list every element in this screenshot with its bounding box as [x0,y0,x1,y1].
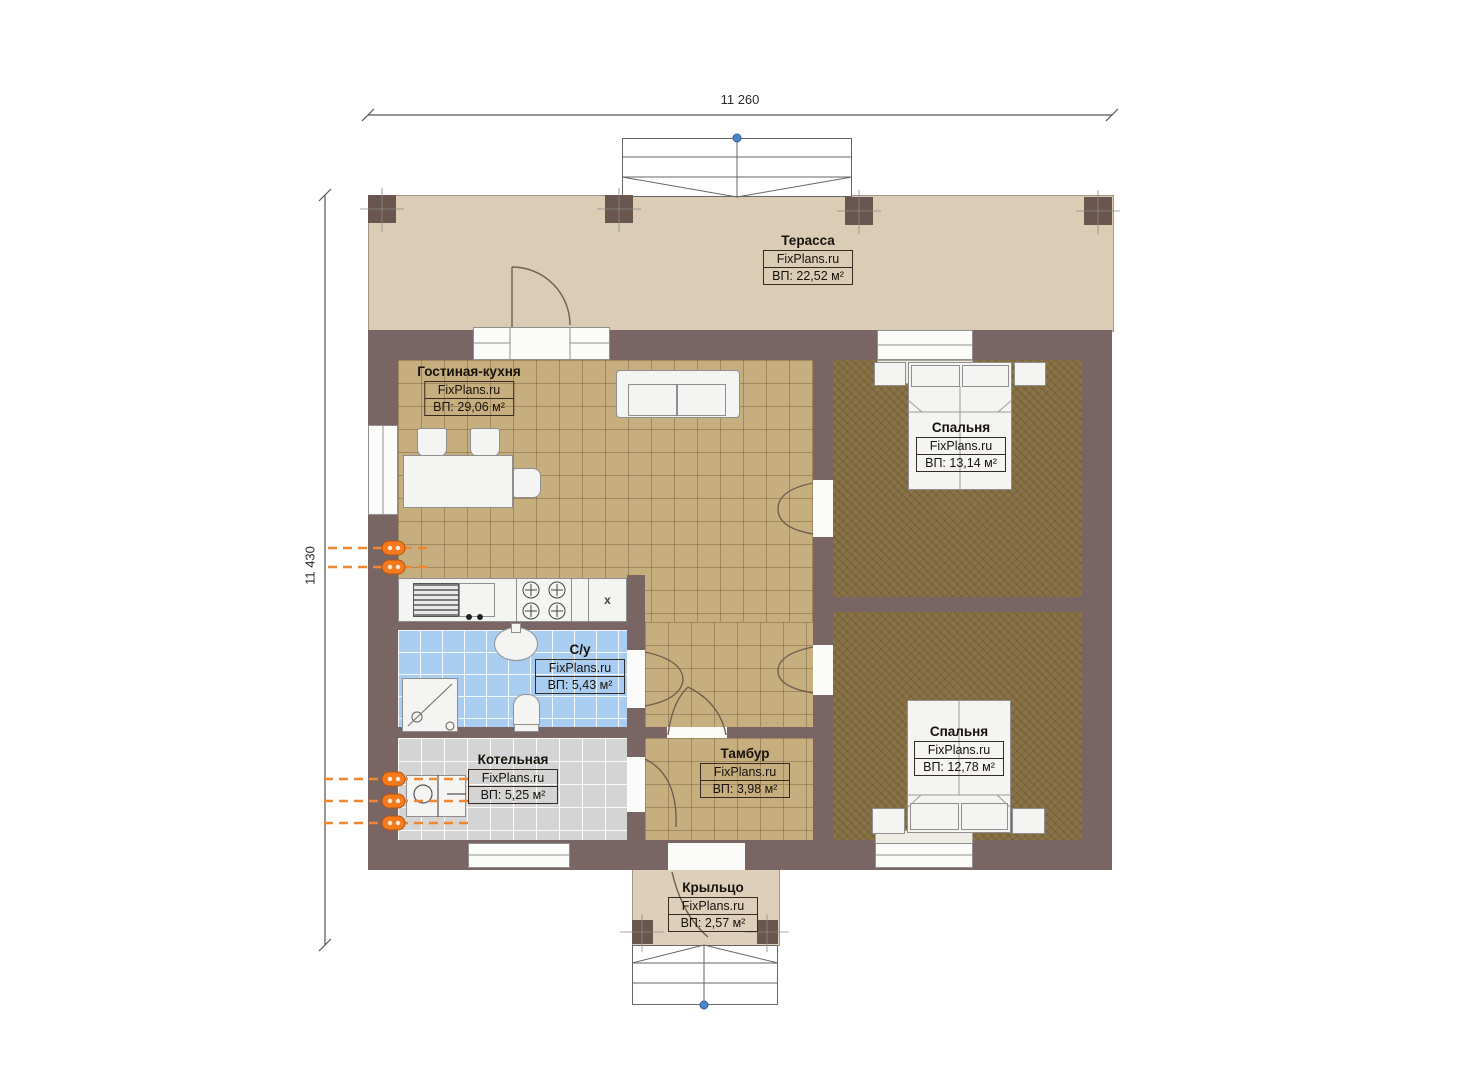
stove [516,578,572,622]
sofa-cushion [628,384,677,416]
room-area: ВП: 22,52 м² [764,268,852,284]
window-boiler-bottom [468,843,570,868]
door-opening-bathroom [627,650,645,708]
toilet-base [514,724,539,732]
room-area: ВП: 29,06 м² [425,399,513,415]
room-info-box: FixPlans.ru ВП: 29,06 м² [424,381,514,416]
room-info-box: FixPlans.ru ВП: 5,43 м² [535,659,625,694]
room-area: ВП: 2,57 м² [669,915,757,931]
nightstand [1012,808,1045,834]
floor-plan-canvas: 11 260 11 430 x [0,0,1474,1080]
chair [513,468,541,498]
chair [417,428,447,457]
bed-cushion [910,803,959,830]
bathroom-sink-tap [511,623,521,633]
porch-stairs [632,945,778,1005]
room-label-bathroom: С/у FixPlans.ru ВП: 5,43 м² [535,642,625,694]
sofa-cushion [677,384,726,416]
room-label-bedroom-bottom: Спальня FixPlans.ru ВП: 12,78 м² [914,724,1004,776]
terrace-column [1084,197,1112,225]
watermark: FixPlans.ru [701,764,789,781]
nightstand [874,362,906,386]
room-label-vestibule: Тамбур FixPlans.ru ВП: 3,98 м² [700,746,790,798]
wall-between-bedrooms [833,597,1082,612]
room-area: ВП: 3,98 м² [701,781,789,797]
watermark: FixPlans.ru [425,382,513,399]
room-name: Котельная [468,752,558,767]
boiler-unit [406,775,466,817]
watermark: FixPlans.ru [669,898,757,915]
shower-tray [402,678,458,732]
watermark: FixPlans.ru [917,438,1005,455]
room-info-box: FixPlans.ru ВП: 12,78 м² [914,741,1004,776]
watermark: FixPlans.ru [764,251,852,268]
terrace-door-opening [473,327,610,360]
room-info-box: FixPlans.ru ВП: 13,14 м² [916,437,1006,472]
dimension-left-label: 11 430 [303,526,318,606]
room-label-terrace: Терасса FixPlans.ru ВП: 22,52 м² [763,233,853,285]
bed-cushion [961,803,1008,830]
nightstand [1014,362,1046,386]
terrace-column [368,195,396,223]
room-label-porch: Крыльцо FixPlans.ru ВП: 2,57 м² [668,880,758,932]
pillow [911,365,960,387]
room-name: Терасса [763,233,853,248]
dish-rack [413,583,459,617]
room-info-box: FixPlans.ru ВП: 3,98 м² [700,763,790,798]
watermark: FixPlans.ru [536,660,624,677]
pillow [962,365,1009,387]
porch-column [632,920,653,944]
kitchen-sink [459,583,495,617]
dining-table [403,455,513,508]
room-name: С/у [535,642,625,657]
room-name: Тамбур [700,746,790,761]
wall-living-bedrooms [813,360,833,840]
porch-column [757,920,778,944]
hallway-floor [645,622,813,727]
door-opening-bedroom-bottom [813,645,833,695]
room-area: ВП: 12,78 м² [915,759,1003,775]
window-bedroom-top [877,330,973,360]
terrace-floor [368,195,1114,332]
door-opening-vestibule [667,727,727,738]
terrace-column [845,197,873,225]
room-area: ВП: 13,14 м² [917,455,1005,471]
door-opening-bedroom-top [813,480,833,537]
room-name: Крыльцо [668,880,758,895]
room-info-box: FixPlans.ru ВП: 5,25 м² [468,769,558,804]
porch-door-opening [668,843,745,870]
chair [470,428,500,457]
watermark: FixPlans.ru [469,770,557,787]
room-name: Гостиная-кухня [417,364,520,379]
room-info-box: FixPlans.ru ВП: 2,57 м² [668,897,758,932]
room-name: Спальня [914,724,1004,739]
room-area: ВП: 5,25 м² [469,787,557,803]
room-label-boiler: Котельная FixPlans.ru ВП: 5,25 м² [468,752,558,804]
nightstand [872,808,905,834]
door-opening-boiler [627,757,645,812]
room-name: Спальня [916,420,1006,435]
terrace-column [605,195,633,223]
window-bedroom-bottom [875,843,973,868]
window-living-left [368,425,398,515]
room-info-box: FixPlans.ru ВП: 22,52 м² [763,250,853,285]
appliance-x: x [588,578,627,622]
watermark: FixPlans.ru [915,742,1003,759]
room-area: ВП: 5,43 м² [536,677,624,693]
terrace-stairs [622,138,852,197]
dimension-top-label: 11 260 [368,92,1112,107]
room-label-bedroom-top: Спальня FixPlans.ru ВП: 13,14 м² [916,420,1006,472]
room-label-living-kitchen: Гостиная-кухня FixPlans.ru ВП: 29,06 м² [417,364,520,416]
